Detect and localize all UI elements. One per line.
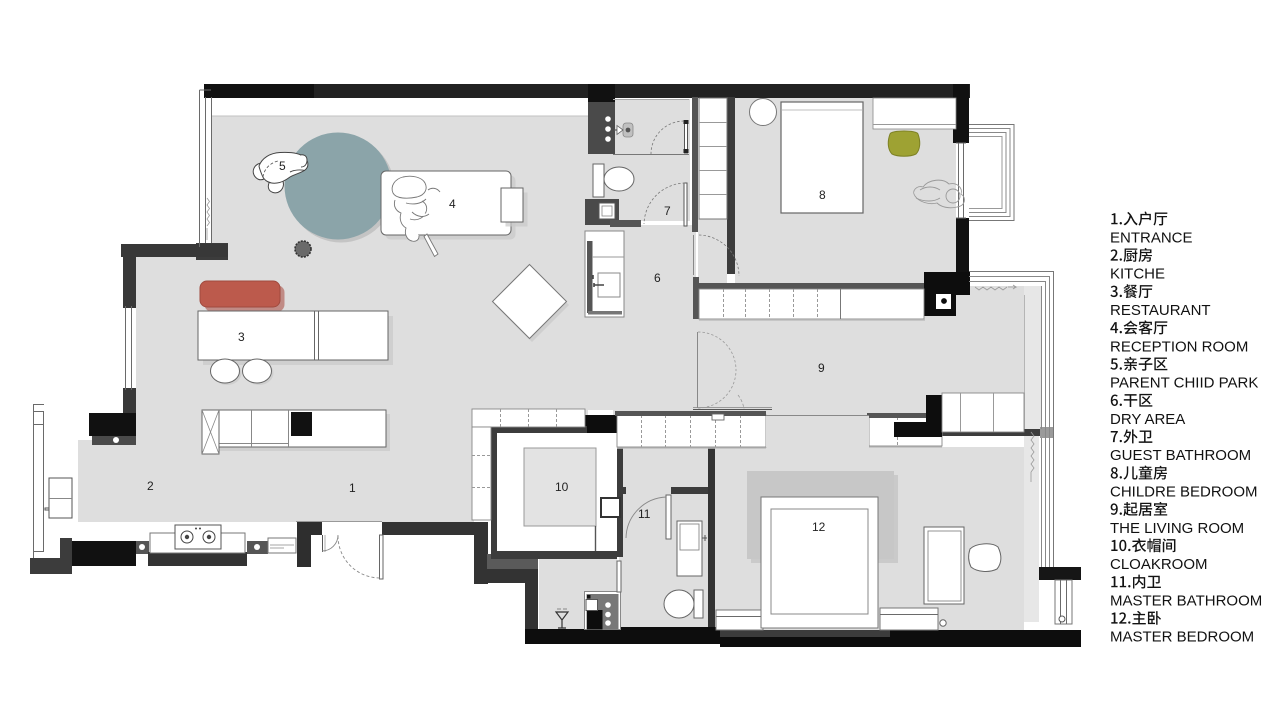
svg-text:1: 1 <box>349 481 356 495</box>
svg-text:9: 9 <box>818 361 825 375</box>
svg-text:GUEST BATHROOM: GUEST BATHROOM <box>1110 447 1251 464</box>
svg-text:6: 6 <box>654 271 661 285</box>
svg-text:8: 8 <box>819 188 826 202</box>
svg-text:MASTER BATHROOM: MASTER BATHROOM <box>1110 592 1262 609</box>
svg-text:DRY AREA: DRY AREA <box>1110 411 1185 428</box>
svg-text:THE LIVING ROOM: THE LIVING ROOM <box>1110 520 1244 537</box>
svg-text:RESTAURANT: RESTAURANT <box>1110 302 1211 319</box>
svg-text:PARENT CHIID PARK: PARENT CHIID PARK <box>1110 375 1258 392</box>
svg-text:5: 5 <box>279 159 286 173</box>
svg-text:10: 10 <box>555 480 569 494</box>
svg-text:MASTER BEDROOM: MASTER BEDROOM <box>1110 629 1254 646</box>
svg-text:7: 7 <box>664 204 671 218</box>
svg-text:ENTRANCE: ENTRANCE <box>1110 229 1193 246</box>
svg-text:3: 3 <box>238 330 245 344</box>
svg-text:RECEPTION ROOM: RECEPTION ROOM <box>1110 338 1248 355</box>
svg-text:CHILDRE BEDROOM: CHILDRE BEDROOM <box>1110 484 1258 501</box>
svg-text:11: 11 <box>638 507 651 521</box>
svg-text:2: 2 <box>147 479 154 493</box>
svg-text:4: 4 <box>449 197 456 211</box>
svg-text:KITCHE: KITCHE <box>1110 266 1165 283</box>
svg-text:12: 12 <box>812 520 826 534</box>
svg-text:CLOAKROOM: CLOAKROOM <box>1110 556 1208 573</box>
